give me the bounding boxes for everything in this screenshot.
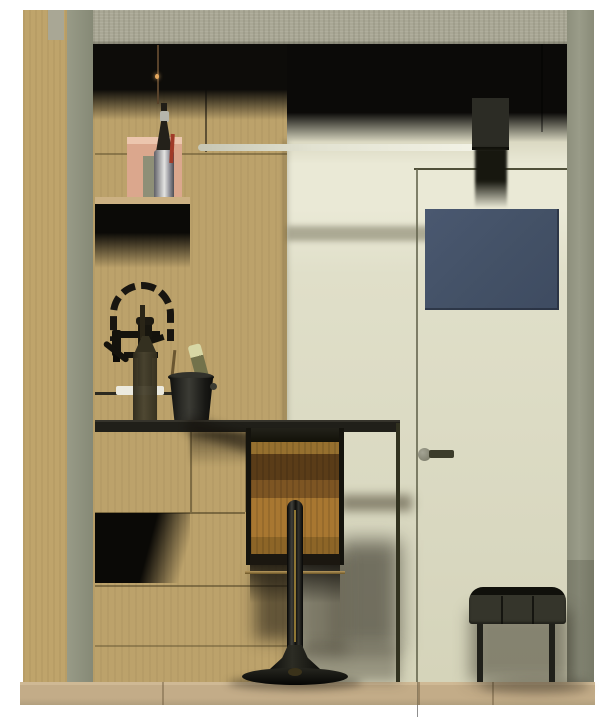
wood-panel-seam [95,153,287,155]
wall-cast-shadow [338,540,400,650]
shelf-bottle-cap [160,111,169,122]
concrete-patch [48,10,64,40]
wall-seam [541,44,543,132]
left-wood-wall [23,10,67,682]
blue-door-panel [425,209,559,310]
bench-leg [477,624,483,682]
wine-bottle-neck [140,305,145,339]
faucet-cap [136,317,154,325]
ceiling-shadow [287,44,567,142]
wall-pillar [67,10,93,682]
linear-light-bar [198,144,486,151]
black-pendant-fixture [472,98,509,150]
wine-bottle-body [133,352,157,421]
stool-brass-line [294,510,296,642]
ceiling-shadow [93,44,287,120]
wall-corner-shade [283,140,291,430]
wall-shelf [95,197,190,204]
bench-cushion-seam [532,596,534,624]
wall-shadow-smudge [287,226,445,241]
filament-bulb-glow [155,74,159,79]
door-line-below-floor [417,705,419,717]
right-edge-shadow [567,560,594,682]
bench-leg [549,624,555,682]
door-line-on-floor [418,682,420,705]
black-pendant-column [475,148,507,208]
door-reveal-line [416,169,418,682]
cabinet-niche-shadow [95,513,190,583]
render-canvas [0,0,602,717]
stool-brass-ring [288,668,302,676]
stool-top-rail [246,428,344,442]
shelf-under-shadow [95,204,190,268]
door-line-on-floor [417,682,418,705]
bench-floor-shadow [480,678,590,694]
cabinet-seam [95,645,293,647]
stool-side-rail [246,428,251,565]
bench-seat [469,587,566,624]
stool-side-rail [339,428,344,565]
door-handle-lever [429,450,454,458]
bench-cushion-seam [501,596,503,624]
ice-bucket-handle [210,383,217,390]
bar-frame-post [396,423,400,682]
ice-bucket [169,378,214,421]
floor-plank-seam [162,682,164,705]
ceiling-beam [23,10,570,44]
wall-cast-shadow [340,495,412,511]
